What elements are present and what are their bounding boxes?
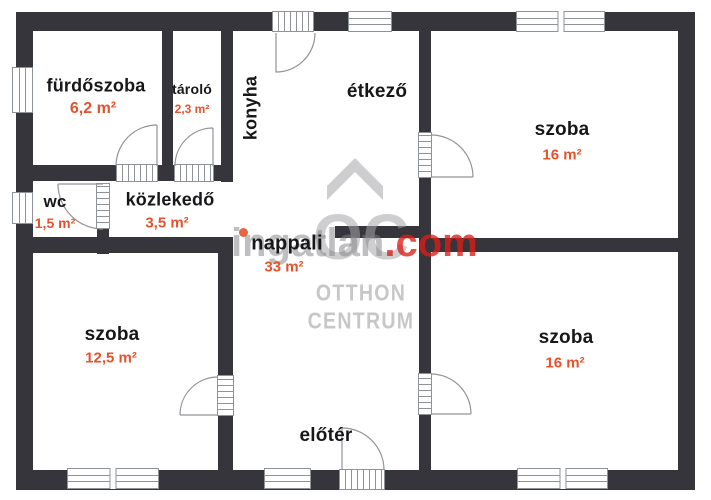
wall-hall-bottom [16, 237, 233, 253]
window-entry-hall [264, 468, 311, 489]
room-area-tarolo: 2,3 m² [175, 102, 210, 116]
otthon-centrum-roof-icon [327, 158, 383, 200]
wall-storage-kitchen-divider [221, 29, 233, 182]
window-room-top-right [516, 11, 605, 32]
wall-right-vertical-upper [419, 29, 431, 133]
room-name-eloter: előtér [300, 425, 353, 447]
door-room-bottom-right [418, 373, 432, 415]
door-room-top-right [418, 132, 432, 178]
door-arc-room-bottom-left [180, 377, 218, 415]
wall-bathroom-bottom-mid [157, 165, 175, 181]
room-name-szoba-bottom-left: szoba [85, 324, 140, 346]
door-bathroom [116, 164, 158, 182]
door-arc-room-bottom-right [431, 374, 471, 414]
ingatlan-watermark-dot-icon [239, 228, 248, 237]
room-name-tarolo: tároló [172, 81, 212, 97]
door-room-bottom-left [217, 375, 234, 416]
door-wc [96, 183, 110, 229]
window-mullion [557, 11, 564, 32]
room-area-nappali: 33 m² [264, 259, 303, 276]
room-name-wc: wc [43, 192, 66, 212]
floor-plan: OC OTTHON CENTRUM ingatlan.com fürdőszob… [0, 0, 711, 500]
room-area-kozlekedo: 3,5 m² [145, 215, 188, 232]
door-arc-room-top-right [431, 135, 473, 177]
window-mullion [110, 468, 117, 489]
room-name-furdoszoba: fürdőszoba [47, 76, 146, 97]
room-area-szoba-top-right: 16 m² [542, 147, 581, 164]
ingatlan-watermark-red: .com [384, 221, 477, 265]
room-name-szoba-bottom-right: szoba [539, 327, 594, 349]
window-room-bottom-left [67, 468, 159, 489]
window-mullion [559, 468, 566, 489]
room-name-etkezo: étkező [347, 81, 407, 103]
door-kitchen-exterior [272, 11, 314, 32]
otthon-centrum-text-line2: CENTRUM [308, 310, 415, 333]
wall-right-vertical-middle [419, 177, 431, 374]
window-room-bottom-right [517, 468, 608, 489]
door-arc-storage [175, 128, 213, 166]
room-name-konyha: konyha [241, 76, 262, 140]
room-area-szoba-bottom-left: 12,5 m² [85, 350, 137, 367]
outer-wall-right [678, 12, 695, 490]
wall-livingroom-left-upper [218, 253, 233, 376]
room-name-szoba-top-right: szoba [535, 119, 590, 141]
room-area-wc: 1,5 m² [35, 215, 75, 231]
door-arc-kitchen-exterior [276, 33, 315, 72]
room-name-nappali: nappali [251, 233, 322, 256]
room-area-furdoszoba: 6,2 m² [70, 100, 116, 118]
door-entry [339, 469, 385, 490]
wall-livingroom-left-lower [218, 416, 233, 471]
room-name-kozlekedo: közlekedő [126, 190, 215, 211]
wall-bathroom-bottom-left [16, 165, 117, 181]
door-storage [174, 164, 214, 182]
room-area-szoba-bottom-right: 16 m² [545, 355, 584, 372]
door-arc-bathroom [116, 125, 157, 166]
wall-right-vertical-lower [419, 414, 431, 471]
window-wc-left [12, 192, 33, 224]
window-bathroom-left [12, 67, 33, 113]
wall-bathroom-storage-divider [162, 29, 173, 166]
window-dining-top [348, 11, 392, 32]
otthon-centrum-text-line1: OTTHON [316, 282, 406, 305]
